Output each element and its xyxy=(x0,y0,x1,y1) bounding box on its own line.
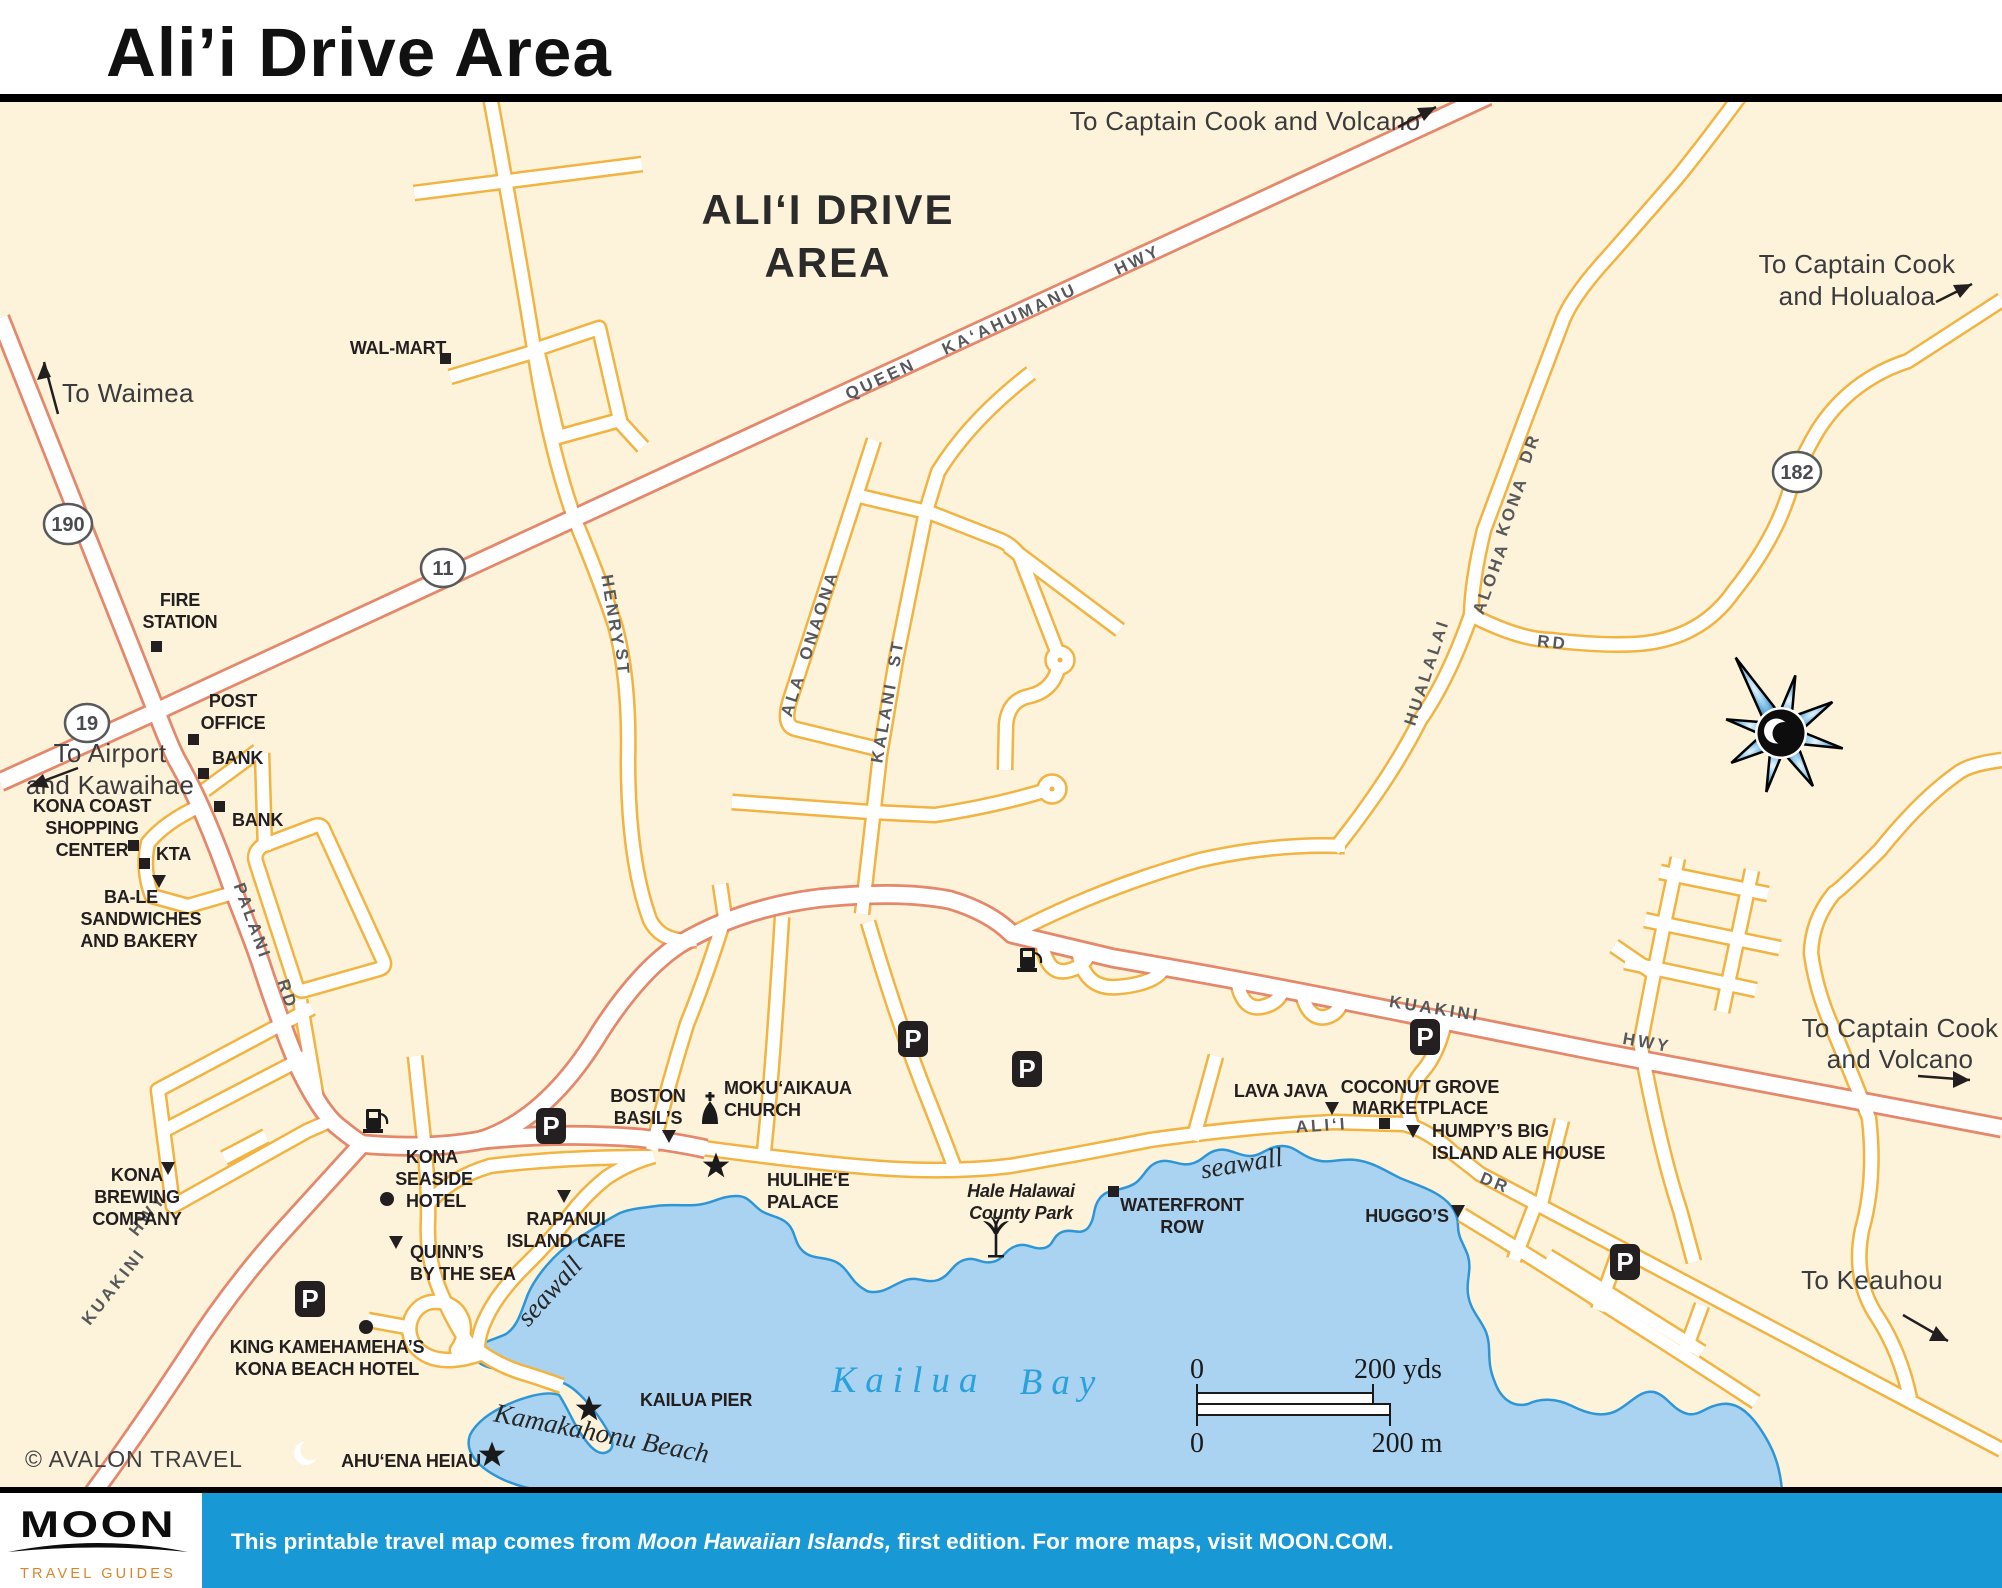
svg-text:ST: ST xyxy=(612,648,633,677)
svg-text:KONA COAST: KONA COAST xyxy=(33,796,152,816)
svg-text:SHOPPING: SHOPPING xyxy=(45,818,138,838)
svg-text:MOKU‘AIKAUA: MOKU‘AIKAUA xyxy=(724,1078,852,1098)
svg-text:SANDWICHES: SANDWICHES xyxy=(80,909,201,929)
svg-text:Hale Halawai: Hale Halawai xyxy=(967,1181,1076,1201)
svg-text:SEASIDE: SEASIDE xyxy=(395,1169,473,1189)
svg-text:BREWING: BREWING xyxy=(94,1187,180,1207)
svg-text:MARKETPLACE: MARKETPLACE xyxy=(1352,1098,1488,1118)
svg-text:KONA: KONA xyxy=(111,1165,163,1185)
svg-text:BY THE SEA: BY THE SEA xyxy=(410,1264,516,1284)
svg-text:P: P xyxy=(301,1284,318,1314)
svg-text:To Airport: To Airport xyxy=(54,738,167,768)
svg-text:FIRE: FIRE xyxy=(160,590,200,610)
svg-text:190: 190 xyxy=(51,514,84,536)
svg-text:P: P xyxy=(542,1111,559,1141)
svg-text:To Waimea: To Waimea xyxy=(62,378,194,408)
svg-text:200 yds: 200 yds xyxy=(1354,1354,1442,1385)
svg-text:0: 0 xyxy=(1190,1428,1204,1459)
svg-text:RD: RD xyxy=(1536,631,1568,653)
svg-text:ROW: ROW xyxy=(1160,1217,1204,1237)
svg-text:BANK: BANK xyxy=(232,810,283,830)
svg-text:MOON: MOON xyxy=(20,1504,176,1545)
svg-text:OFFICE: OFFICE xyxy=(201,713,266,733)
svg-text:ALI‘I: ALI‘I xyxy=(1295,1114,1348,1137)
svg-text:BANK: BANK xyxy=(212,748,263,768)
svg-text:COMPANY: COMPANY xyxy=(92,1209,181,1229)
svg-text:BASIL’S: BASIL’S xyxy=(614,1108,683,1128)
svg-text:ISLAND ALE HOUSE: ISLAND ALE HOUSE xyxy=(1432,1143,1605,1163)
svg-text:ALI‘I DRIVE: ALI‘I DRIVE xyxy=(701,186,954,233)
svg-text:Kailua: Kailua xyxy=(831,1360,987,1401)
svg-text:QUINN’S: QUINN’S xyxy=(410,1242,484,1262)
svg-text:BA-LE: BA-LE xyxy=(104,887,158,907)
svg-text:and Holualoa: and Holualoa xyxy=(1779,281,1936,311)
svg-text:To Captain Cook: To Captain Cook xyxy=(1802,1013,1999,1043)
svg-text:KING KAMEHAMEHA’S: KING KAMEHAMEHA’S xyxy=(230,1337,425,1357)
svg-text:HUMPY’S BIG: HUMPY’S BIG xyxy=(1432,1121,1549,1141)
svg-text:HULIHE‘E: HULIHE‘E xyxy=(767,1170,850,1190)
svg-text:P: P xyxy=(1616,1247,1633,1277)
svg-text:KONA BEACH HOTEL: KONA BEACH HOTEL xyxy=(235,1359,419,1379)
svg-text:KTA: KTA xyxy=(156,844,191,864)
svg-text:182: 182 xyxy=(1780,462,1813,484)
svg-text:200 m: 200 m xyxy=(1372,1428,1443,1459)
svg-text:AND BAKERY: AND BAKERY xyxy=(80,931,198,951)
svg-text:WAL-MART: WAL-MART xyxy=(350,338,447,358)
svg-text:CENTER: CENTER xyxy=(56,840,129,860)
svg-text:P: P xyxy=(904,1024,921,1054)
svg-text:Ali’i Drive Area: Ali’i Drive Area xyxy=(106,14,612,91)
svg-text:To Captain Cook: To Captain Cook xyxy=(1759,249,1956,279)
svg-text:HUGGO’S: HUGGO’S xyxy=(1365,1206,1449,1226)
svg-text:P: P xyxy=(1416,1022,1433,1052)
svg-text:19: 19 xyxy=(76,713,98,735)
svg-text:KAILUA PIER: KAILUA PIER xyxy=(640,1390,752,1410)
svg-text:HOTEL: HOTEL xyxy=(406,1191,466,1211)
svg-text:11: 11 xyxy=(432,558,453,580)
svg-text:To Keauhou: To Keauhou xyxy=(1801,1265,1943,1295)
svg-text:COCONUT GROVE: COCONUT GROVE xyxy=(1341,1077,1500,1097)
svg-text:This printable travel map come: This printable travel map comes from Moo… xyxy=(231,1529,1394,1554)
svg-text:POST: POST xyxy=(209,691,257,711)
svg-text:© AVALON TRAVEL: © AVALON TRAVEL xyxy=(25,1446,243,1472)
svg-text:AHU‘ENA HEIAU: AHU‘ENA HEIAU xyxy=(341,1451,481,1471)
svg-text:CHURCH: CHURCH xyxy=(724,1100,801,1120)
svg-text:and Volcano: and Volcano xyxy=(1827,1044,1973,1074)
svg-text:RAPANUI: RAPANUI xyxy=(526,1209,605,1229)
svg-text:KONA: KONA xyxy=(406,1147,458,1167)
svg-text:PALACE: PALACE xyxy=(767,1192,839,1212)
svg-text:TRAVEL GUIDES: TRAVEL GUIDES xyxy=(20,1566,176,1582)
svg-text:STATION: STATION xyxy=(143,612,218,632)
svg-text:0: 0 xyxy=(1190,1354,1204,1385)
svg-text:ISLAND CAFE: ISLAND CAFE xyxy=(507,1231,626,1251)
svg-text:Bay: Bay xyxy=(1020,1362,1105,1403)
svg-text:AREA: AREA xyxy=(764,239,891,286)
svg-text:To Captain Cook and Volcano: To Captain Cook and Volcano xyxy=(1070,106,1421,136)
svg-text:LAVA JAVA: LAVA JAVA xyxy=(1234,1081,1328,1101)
svg-text:WATERFRONT: WATERFRONT xyxy=(1120,1195,1244,1215)
svg-text:BOSTON: BOSTON xyxy=(610,1086,685,1106)
svg-text:P: P xyxy=(1018,1054,1035,1084)
svg-text:County Park: County Park xyxy=(969,1203,1074,1223)
